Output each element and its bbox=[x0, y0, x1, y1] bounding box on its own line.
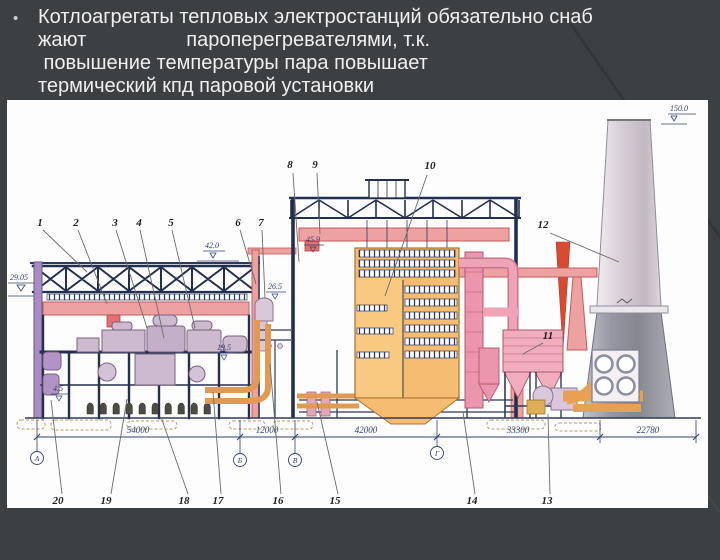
condenser bbox=[135, 354, 175, 385]
callout-1: 1 bbox=[37, 217, 43, 229]
dim-22780: 22780 bbox=[637, 425, 660, 435]
callout-6: 6 bbox=[235, 217, 241, 229]
callout-4: 4 bbox=[135, 217, 142, 229]
svg-text:42.0: 42.0 bbox=[205, 241, 219, 250]
callout-14: 14 bbox=[467, 495, 479, 507]
slide: • Котлоагрегаты тепловых электростанций … bbox=[0, 0, 720, 540]
callout-3: 3 bbox=[111, 217, 118, 229]
callout-16: 16 bbox=[273, 495, 285, 507]
hp-heater-1 bbox=[43, 352, 61, 370]
boiler bbox=[355, 220, 459, 424]
svg-text:19.5: 19.5 bbox=[217, 343, 231, 352]
callout-5: 5 bbox=[168, 217, 174, 229]
text-line-3: повышение температуры пара повышает bbox=[38, 52, 716, 75]
text-line-4: термический кпд паровой установки bbox=[38, 75, 716, 98]
furnace bbox=[356, 278, 402, 397]
callout-13: 13 bbox=[542, 495, 554, 507]
axis-A: А bbox=[34, 454, 40, 463]
dim-54000: 54000 bbox=[127, 425, 150, 435]
svg-text:4.5: 4.5 bbox=[53, 384, 63, 393]
callout-7: 7 bbox=[258, 217, 264, 229]
stack-flue-box bbox=[592, 350, 639, 402]
deaerator-vessel bbox=[255, 298, 273, 321]
svg-text:150.0: 150.0 bbox=[670, 104, 688, 113]
callout-12: 12 bbox=[538, 219, 550, 231]
callout-20: 20 bbox=[52, 495, 65, 507]
callout-11: 11 bbox=[543, 330, 553, 342]
callout-9: 9 bbox=[312, 159, 318, 171]
svg-text:29.05: 29.05 bbox=[10, 273, 28, 282]
dim-33300: 33300 bbox=[506, 425, 530, 435]
cyclone bbox=[479, 348, 499, 384]
boiler-crane-girder bbox=[299, 228, 509, 241]
svg-text:26.5: 26.5 bbox=[268, 282, 282, 291]
crane-girder bbox=[43, 302, 249, 315]
text-lines: Котлоагрегаты тепловых электростанций об… bbox=[38, 6, 716, 98]
callout-19: 19 bbox=[101, 495, 113, 507]
axis-B: Б bbox=[237, 456, 243, 465]
bullet-marker: • bbox=[13, 7, 18, 30]
text-line-2: жают пароперегревателями, т.к. bbox=[38, 29, 716, 52]
axis-V: В bbox=[293, 456, 298, 465]
callout-2: 2 bbox=[72, 217, 79, 229]
bullet-text-block: • Котлоагрегаты тепловых электростанций … bbox=[13, 6, 716, 98]
callout-8: 8 bbox=[287, 159, 293, 171]
text-line-1: Котлоагрегаты тепловых электростанций об… bbox=[38, 6, 716, 29]
callout-15: 15 bbox=[330, 495, 342, 507]
callout-10: 10 bbox=[425, 160, 437, 172]
diagram-image: 54000 12000 42000 33300 22780 А Б В Г 29… bbox=[7, 100, 708, 508]
callout-18: 18 bbox=[179, 495, 191, 507]
svg-text:45.9: 45.9 bbox=[306, 235, 320, 244]
power-plant-cross-section: 54000 12000 42000 33300 22780 А Б В Г 29… bbox=[7, 100, 708, 508]
axis-G: Г bbox=[434, 449, 440, 458]
roof-lantern bbox=[365, 180, 409, 198]
callout-17: 17 bbox=[213, 495, 225, 507]
crane-rail-walkway bbox=[47, 294, 247, 300]
hall-column-A bbox=[34, 262, 42, 418]
dim-42000: 42000 bbox=[355, 425, 378, 435]
